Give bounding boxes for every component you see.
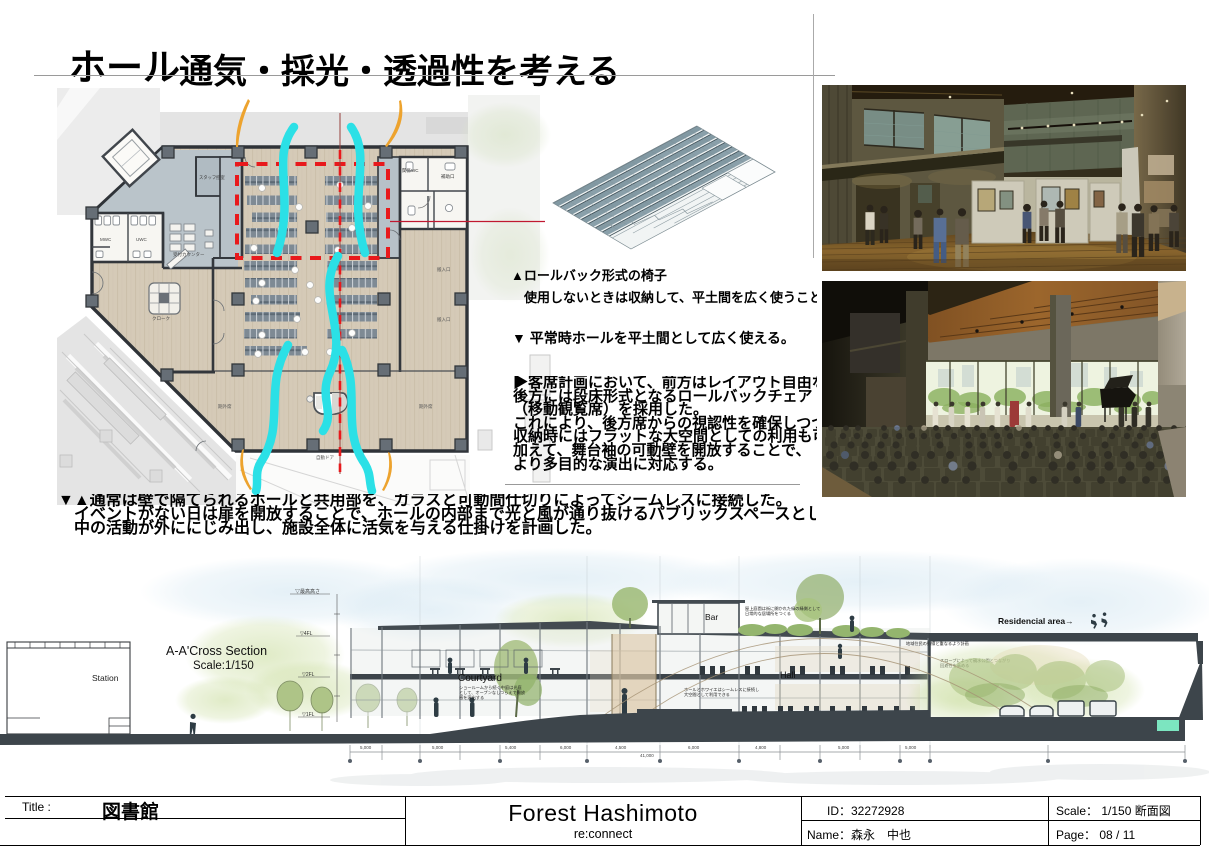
svg-text:4,800: 4,800	[755, 745, 767, 750]
svg-text:期外席: 期外席	[419, 403, 433, 410]
svg-text:Station: Station	[92, 673, 119, 683]
svg-text:6,000: 6,000	[688, 745, 700, 750]
svg-text:大空間として利用できる: 大空間として利用できる	[684, 691, 730, 698]
svg-text:自動ドア: 自動ドア	[316, 454, 334, 461]
svg-text:5,000: 5,000	[905, 745, 917, 750]
svg-text:搬入口: 搬入口	[437, 266, 451, 273]
svg-text:4,500: 4,500	[615, 745, 627, 750]
svg-text:スタッフ控室: スタッフ控室	[199, 174, 225, 181]
svg-text:感を演出する: 感を演出する	[459, 694, 484, 701]
svg-text:Residencial area→: Residencial area→	[998, 616, 1074, 626]
svg-text:6,000: 6,000	[560, 745, 572, 750]
svg-text:Hall: Hall	[780, 670, 796, 680]
svg-text:Scale:1/150: Scale:1/150	[193, 660, 254, 672]
svg-text:Courtyard: Courtyard	[458, 673, 502, 684]
svg-text:5,000: 5,000	[360, 745, 372, 750]
svg-text:関係WC: 関係WC	[402, 167, 419, 174]
svg-text:5,400: 5,400	[505, 745, 517, 750]
svg-text:5,000: 5,000	[838, 745, 850, 750]
svg-text:期外席: 期外席	[218, 403, 232, 410]
svg-text:日常的な居場所をつくる: 日常的な居場所をつくる	[745, 610, 791, 617]
svg-text:搬入口: 搬入口	[437, 316, 451, 323]
svg-text:41,000: 41,000	[640, 753, 654, 758]
svg-text:受付カウンター: 受付カウンター	[173, 251, 205, 258]
svg-text:補助口: 補助口	[441, 173, 455, 180]
svg-text:MWC: MWC	[100, 237, 112, 242]
svg-text:UWC: UWC	[136, 237, 147, 242]
svg-text:A-A'Cross Section: A-A'Cross Section	[166, 644, 267, 658]
svg-text:Bar: Bar	[705, 612, 718, 622]
svg-text:5,000: 5,000	[432, 745, 444, 750]
